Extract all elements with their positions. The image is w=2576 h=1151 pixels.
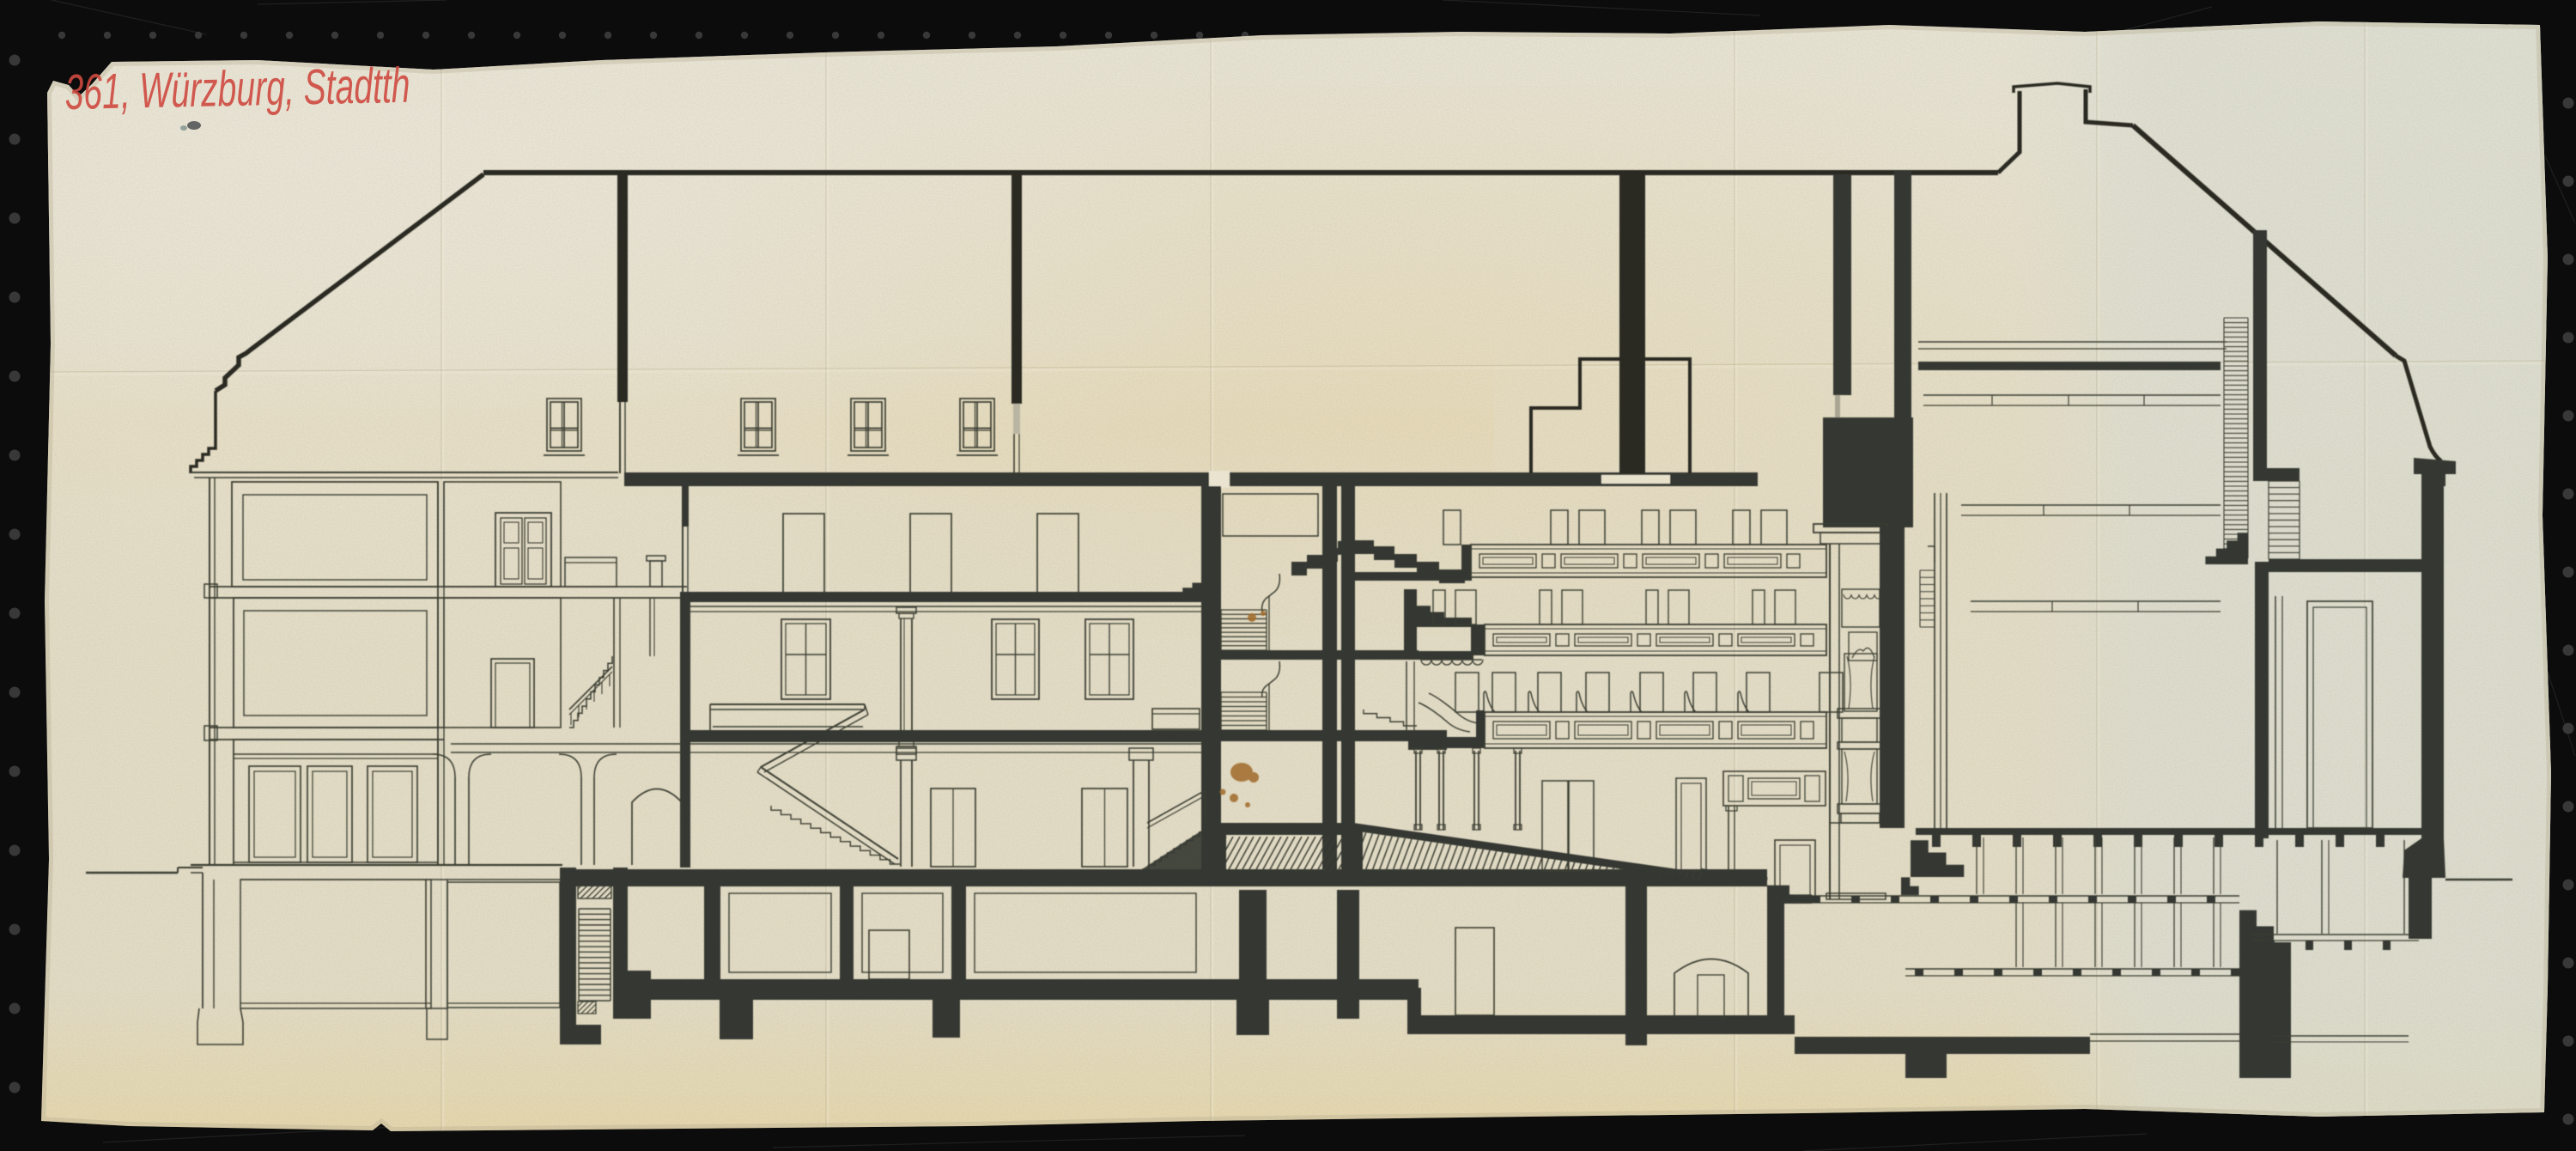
svg-text:361, Würzburg, Stadtth: 361, Würzburg, Stadtth (64, 58, 410, 120)
